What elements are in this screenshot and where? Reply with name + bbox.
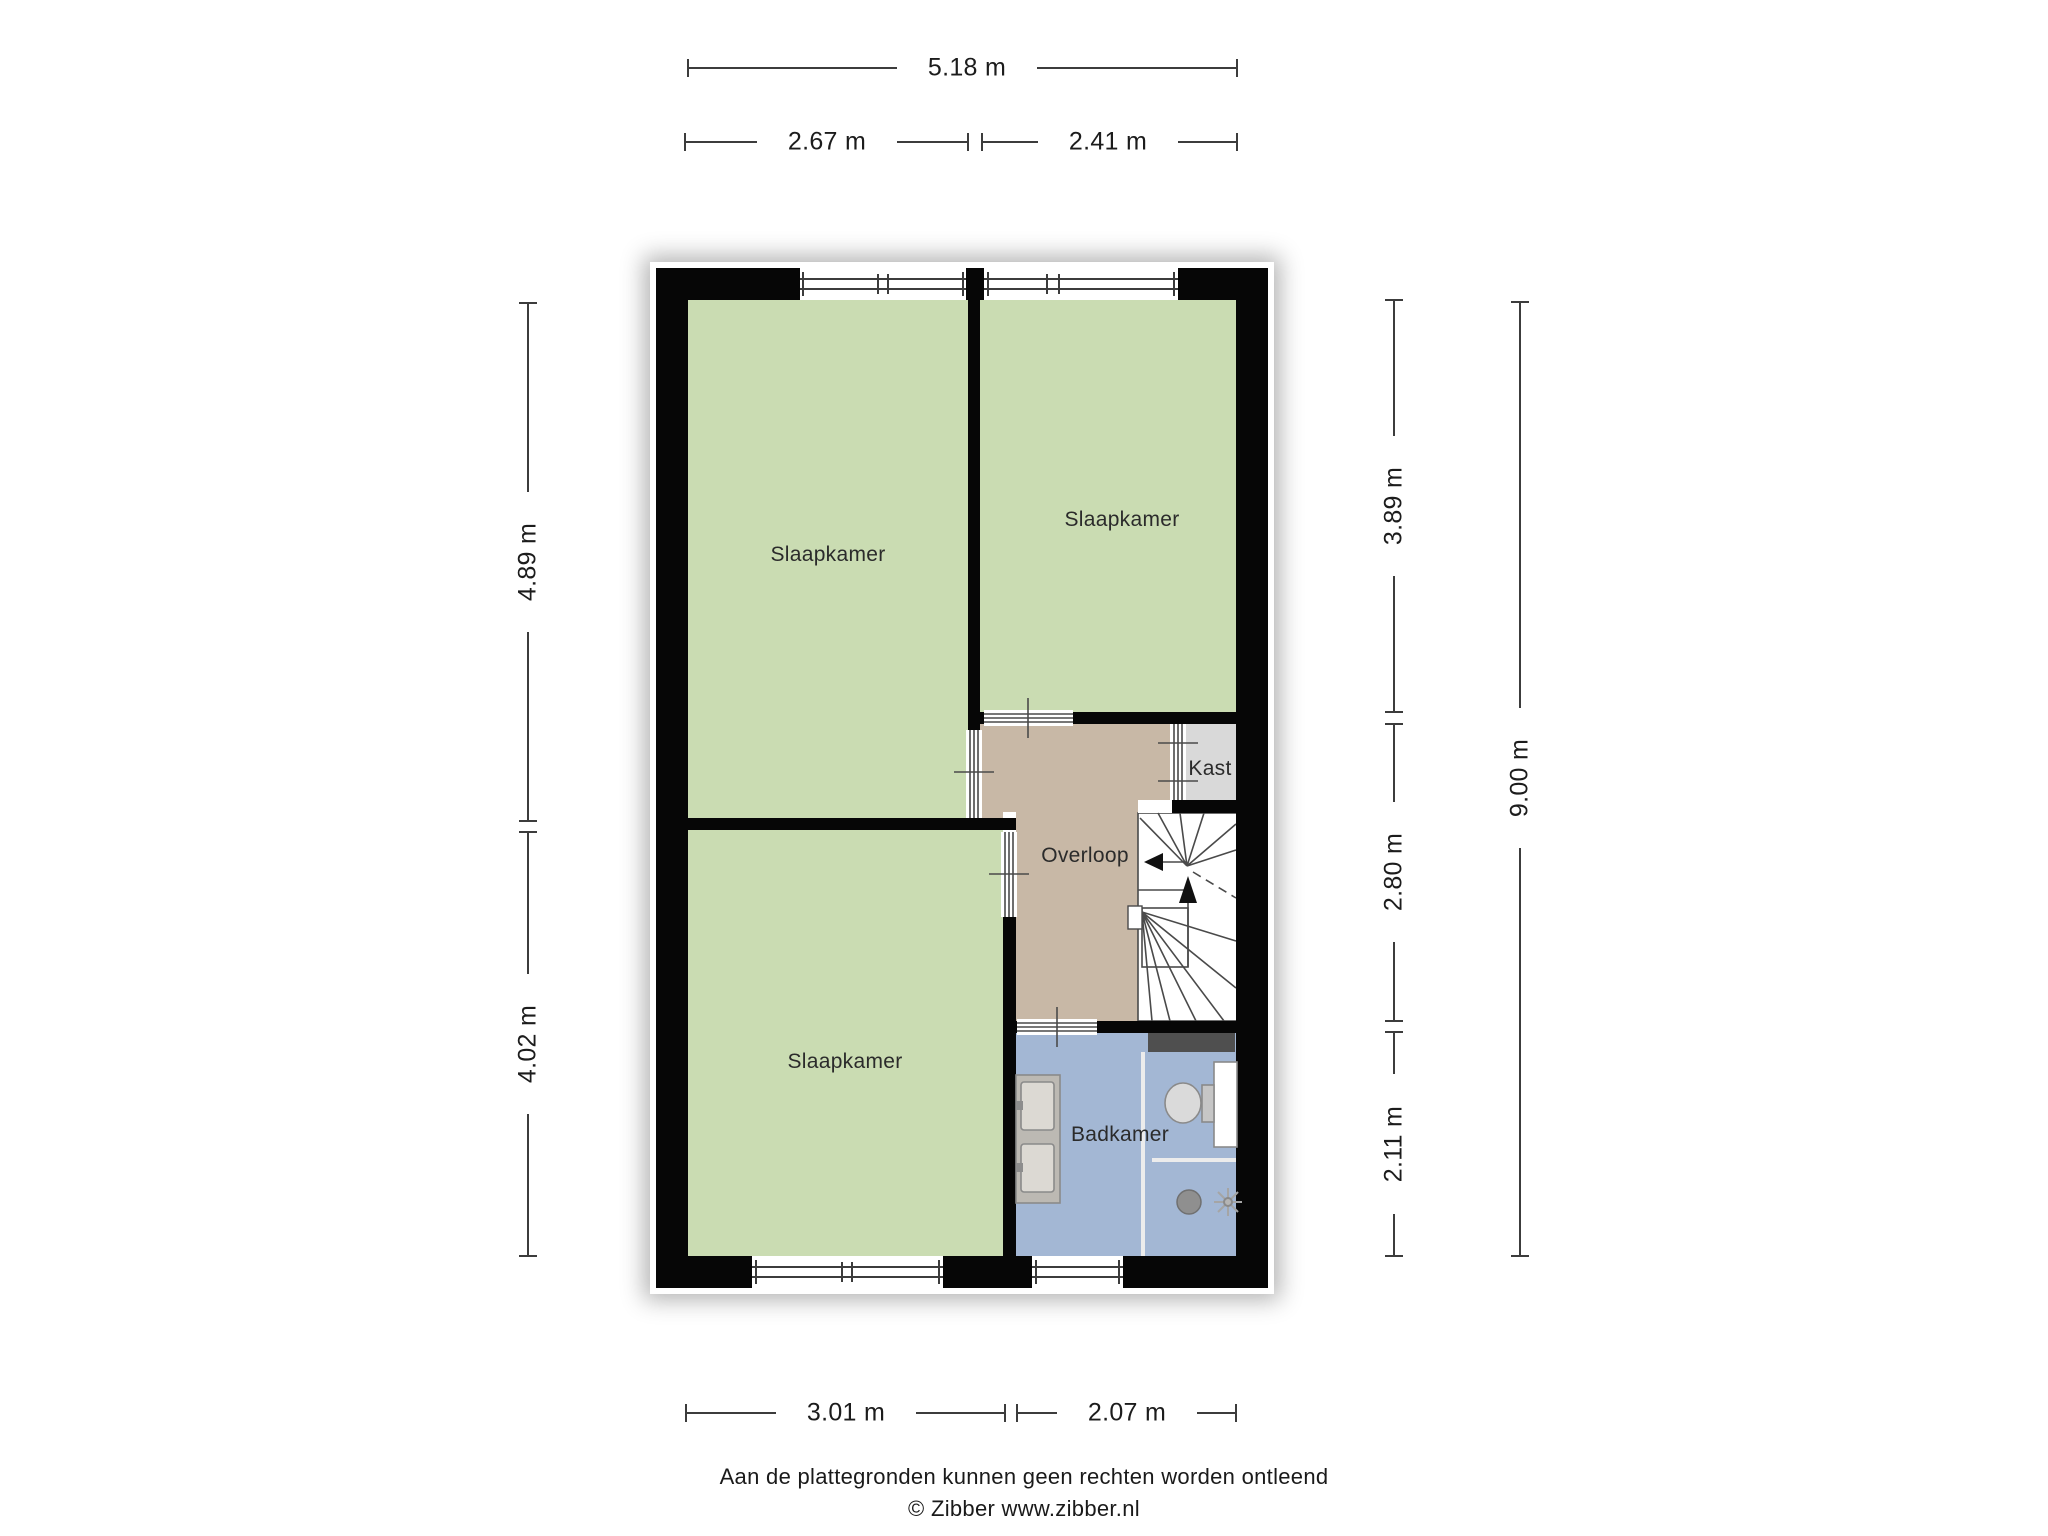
room-landing-upper (980, 724, 1172, 812)
wall-bedrooms-left (688, 818, 1016, 830)
room-fills (688, 300, 1237, 1256)
stairs (1128, 800, 1237, 1021)
room-label-bedroom-top-left: Slaapkamer (770, 543, 885, 567)
stairs-newel (1128, 906, 1142, 929)
room-label-bathroom: Badkamer (1071, 1123, 1169, 1147)
footer-copyright: © Zibber www.zibber.nl (908, 1496, 1140, 1522)
dimension-height-total: 9.00 m (1506, 739, 1535, 817)
wall-closet-bottom (1172, 800, 1237, 813)
room-landing-left-strip (980, 724, 1003, 818)
dimension-width-top-left: 2.67 m (788, 128, 866, 157)
wall-bedrooms-top (968, 300, 980, 730)
floor-plan-page: Slaapkamer Slaapkamer Slaapkamer Overloo… (0, 0, 2048, 1536)
window-bedroom-top-left (800, 268, 966, 300)
wall-bedroom-bottom-right (1003, 917, 1016, 1256)
room-label-bedroom-top-right: Slaapkamer (1064, 508, 1179, 532)
shower-drain-icon (1177, 1190, 1201, 1214)
room-bedroom-bottom (688, 830, 1003, 1256)
shower-head-icon (1214, 1188, 1242, 1216)
room-label-closet: Kast (1188, 757, 1231, 781)
window-bedroom-top-right (984, 268, 1178, 300)
dimension-height-left-lower: 4.02 m (514, 1005, 543, 1083)
dimension-width-total: 5.18 m (928, 54, 1006, 83)
stairs-opening (1138, 800, 1172, 813)
bathroom-niche (1214, 1062, 1237, 1147)
dimension-height-right-middle: 2.80 m (1380, 833, 1409, 911)
wall-bathroom-top (1097, 1021, 1237, 1033)
floor-plan-svg (0, 0, 2048, 1536)
toilet-icon (1165, 1083, 1214, 1123)
dimension-height-right-upper: 3.89 m (1380, 467, 1409, 545)
window-bedroom-bottom (752, 1256, 943, 1288)
footer-disclaimer: Aan de plattegronden kunnen geen rechten… (720, 1464, 1329, 1490)
dimension-width-bottom-right: 2.07 m (1088, 1399, 1166, 1428)
vanity-icon (1016, 1075, 1060, 1203)
room-bedroom-top-right (980, 300, 1237, 712)
bathroom-knee-wall (1148, 1033, 1235, 1052)
window-bathroom (1032, 1256, 1123, 1288)
dimension-width-top-right: 2.41 m (1069, 128, 1147, 157)
room-label-bedroom-bottom: Slaapkamer (787, 1050, 902, 1074)
dimension-height-left-upper: 4.89 m (514, 523, 543, 601)
dimension-width-bottom-left: 3.01 m (807, 1399, 885, 1428)
dimension-height-right-lower: 2.11 m (1380, 1106, 1409, 1182)
room-label-landing: Overloop (1041, 844, 1129, 868)
wall-landing-top (1073, 712, 1237, 724)
